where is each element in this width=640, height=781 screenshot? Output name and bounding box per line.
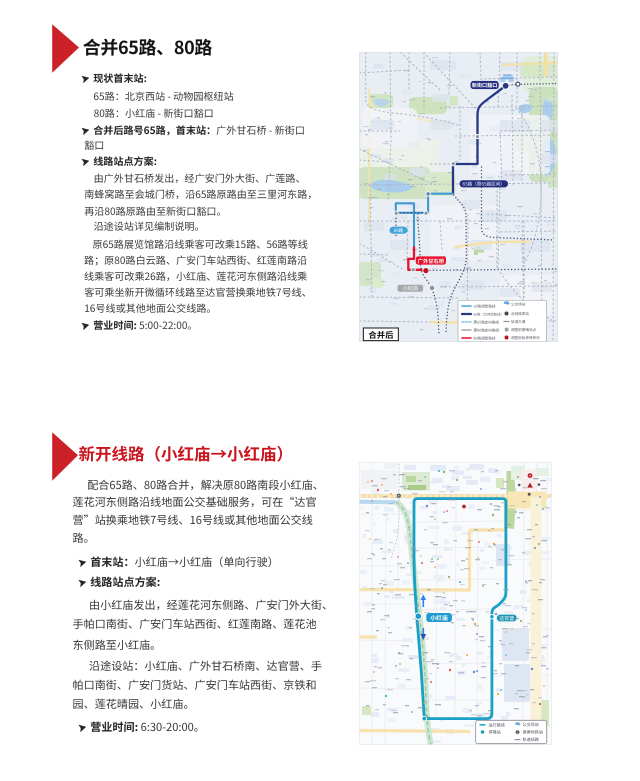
svg-text:停靠站: 停靠站 xyxy=(489,730,501,736)
svg-text:65路（原65路区间）: 65路（原65路区间） xyxy=(463,181,505,187)
svg-text:广外甘石桥: 广外甘石桥 xyxy=(418,257,445,265)
svg-text:65路调整路线: 65路调整路线 xyxy=(474,303,496,309)
svg-text:调整后始发终到站: 调整后始发终到站 xyxy=(511,335,540,341)
svg-text:达官营: 达官营 xyxy=(499,615,514,622)
svg-text:运行路线: 运行路线 xyxy=(489,722,505,728)
svg-text:公交场站: 公交场站 xyxy=(511,301,526,307)
svg-text:65路（合并后路线）: 65路（合并后路线） xyxy=(474,311,504,316)
svg-text:80路调整路线: 80路调整路线 xyxy=(474,335,496,341)
svg-text:轨道交通: 轨道交通 xyxy=(511,319,526,325)
svg-text:沿线换乘站: 沿线换乘站 xyxy=(511,311,529,317)
svg-text:公交场站: 公交场站 xyxy=(523,722,539,728)
svg-text:小红庙: 小红庙 xyxy=(403,285,419,292)
svg-text:调整前撤销站点: 调整前撤销站点 xyxy=(511,327,537,333)
svg-text:合并后: 合并后 xyxy=(368,329,394,341)
svg-text:换乘地铁站: 换乘地铁站 xyxy=(523,730,543,736)
svg-text:轨道线路: 轨道线路 xyxy=(523,737,539,743)
svg-text:65路: 65路 xyxy=(394,228,404,234)
svg-text:小红庙: 小红庙 xyxy=(430,613,448,622)
svg-text:新街口豁口: 新街口豁口 xyxy=(472,82,497,89)
svg-text:原80路走向路线: 原80路走向路线 xyxy=(474,327,500,333)
svg-text:B: B xyxy=(517,731,519,735)
svg-text:原65路走向路线: 原65路走向路线 xyxy=(474,319,500,325)
